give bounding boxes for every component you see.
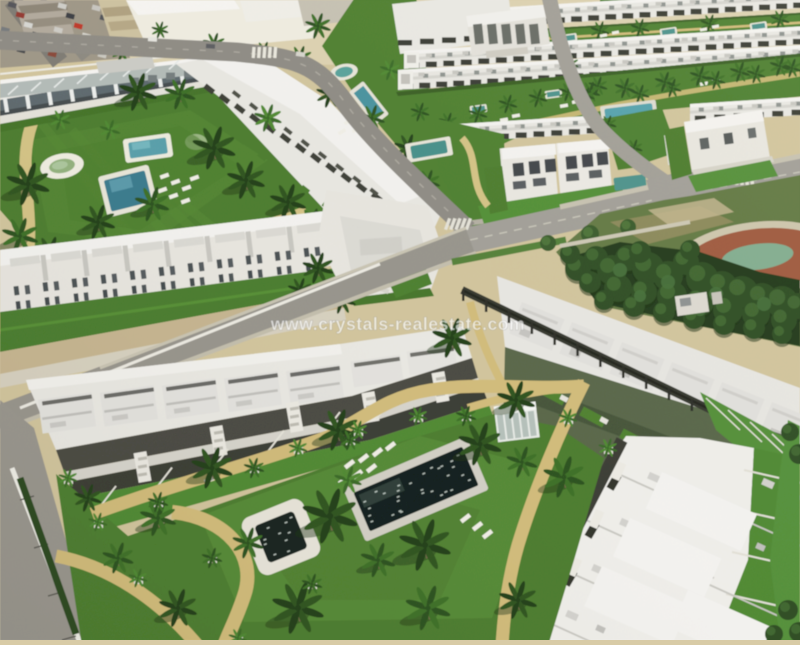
svg-text:www.crystals-realestate.com: www.crystals-realestate.com	[270, 314, 525, 334]
